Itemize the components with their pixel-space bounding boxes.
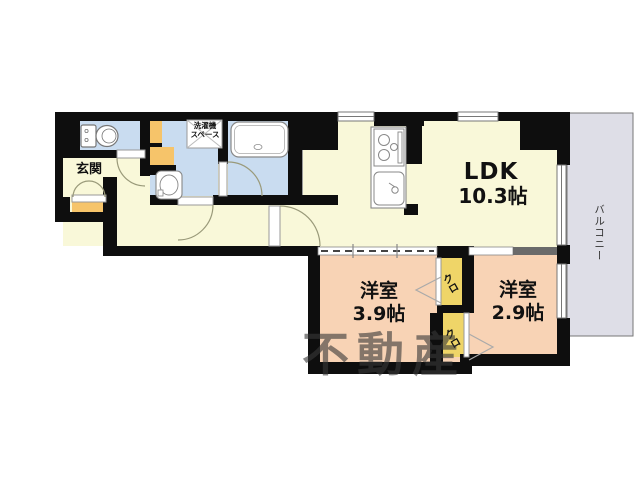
- kitchen-unit: [371, 127, 406, 208]
- toilet-icon: [81, 125, 118, 147]
- wall-closet-upper-right: [462, 246, 474, 313]
- bedroom2-size-label: 2.9帖: [478, 303, 558, 325]
- wall-right-1: [557, 150, 570, 165]
- wall-closet-mid: [437, 305, 470, 313]
- wall-right-3: [557, 318, 570, 366]
- watermark-text: 不動産: [302, 329, 467, 383]
- kitchen-stove-icon: [374, 129, 404, 166]
- laundry-space-label-line2: スペース: [186, 130, 224, 139]
- bedroom2-label: 洋室: [478, 280, 558, 302]
- wall-bath-right: [288, 121, 302, 205]
- wall-wet-bottom-right: [213, 195, 338, 205]
- toilet-door: [117, 150, 145, 158]
- kitchen-sink-icon: [374, 172, 404, 205]
- bathroom-door: [219, 162, 227, 196]
- floor-plan-drawing: [0, 0, 640, 480]
- floor-plan-page: LDK 10.3帖 洋室 3.9帖 洋室 2.9帖 玄関 洗濯機 スペース クロ…: [0, 0, 640, 480]
- sliding-door-bedroom2: [469, 247, 557, 255]
- window-bedroom2-balcony: [557, 264, 566, 318]
- sliding-door-panel-closed: [513, 247, 557, 255]
- wall-right-2: [557, 245, 570, 264]
- entrance-door: [72, 195, 106, 202]
- washroom-door: [178, 197, 213, 205]
- wall-hall-bottom: [103, 246, 318, 256]
- window-ldk-balcony: [557, 165, 566, 245]
- storage-niche-1: [150, 120, 162, 143]
- bedroom1-label: 洋室: [339, 281, 419, 303]
- wall-top-right: [520, 112, 570, 150]
- ldk-door: [269, 206, 280, 246]
- balcony-label: バルコニー: [593, 203, 605, 263]
- wall-niche-mid: [150, 143, 162, 147]
- entrance-step: [72, 202, 106, 212]
- ldk-label: LDK: [451, 159, 531, 185]
- storage-niche-2: [150, 147, 174, 165]
- wall-kitchen-top: [374, 112, 424, 126]
- ldk-size-label: 10.3帖: [443, 185, 543, 208]
- entrance-label: 玄関: [64, 163, 114, 178]
- window-top-kitchen: [338, 112, 374, 121]
- window-top-ldk: [458, 112, 498, 121]
- bathtub-icon: [231, 122, 288, 157]
- wall-toilet-wash-divider: [140, 112, 150, 176]
- bedroom1-size-label: 3.9帖: [339, 304, 419, 326]
- wall-kitchen-right: [406, 126, 422, 164]
- wall-entrance-bottom: [63, 212, 110, 222]
- laundry-space-label-line1: 洗濯機: [186, 121, 224, 130]
- washbasin-icon: [156, 171, 182, 199]
- wall-toilet-bottom: [68, 150, 117, 158]
- wall-entrance-column: [103, 177, 117, 256]
- laundry-space-label: 洗濯機 スペース: [186, 121, 224, 140]
